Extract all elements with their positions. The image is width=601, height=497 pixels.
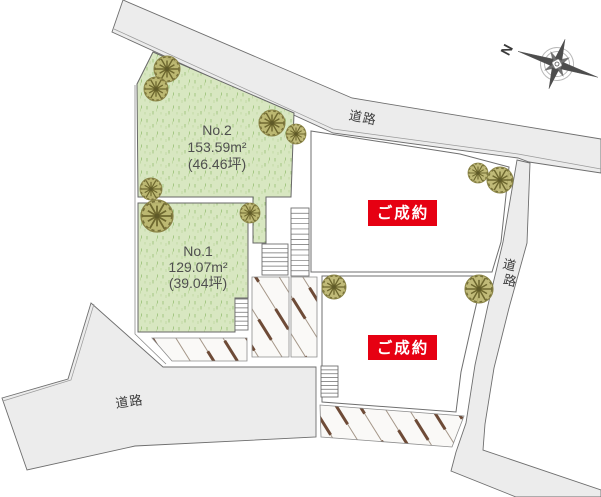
slope-hatch-mid-a — [252, 277, 289, 357]
sold-badge-label: ご成約 — [377, 338, 430, 357]
plot-no2-area-m2: 153.59m² — [187, 139, 246, 155]
tree-icon — [259, 110, 285, 136]
sold-badge-label: ご成約 — [377, 203, 430, 222]
tree-icon — [322, 275, 346, 299]
north-label: N — [497, 41, 516, 57]
plot-no2-name: No.2 — [202, 122, 232, 138]
tree-icon — [141, 200, 173, 232]
tree-icon — [468, 163, 488, 183]
tree-icon — [240, 203, 260, 223]
tree-icon — [144, 77, 168, 101]
tree-icon — [286, 124, 306, 144]
slope-hatch-left — [152, 338, 247, 361]
stairs-icon — [291, 208, 309, 276]
plot-no1-name: No.1 — [183, 243, 213, 259]
stairs-icon — [321, 366, 338, 397]
tree-icon — [465, 275, 493, 303]
sold-badge-lower: ご成約 — [368, 335, 437, 360]
tree-icon — [487, 167, 513, 193]
compass-spike-north — [555, 38, 568, 60]
compass-spike-south — [546, 68, 559, 90]
slope-hatch-mid-b — [291, 277, 317, 357]
compass-center — [554, 61, 559, 66]
plot-no1-area-tsubo: (39.04坪) — [169, 275, 227, 291]
compass-rose — [510, 27, 601, 102]
plot-no1-area-m2: 129.07m² — [168, 259, 227, 275]
site-plan-map: ご成約 ご成約 No.2 153.59m² (46.46坪) No.1 129.… — [0, 0, 601, 497]
stairs-icon — [235, 299, 248, 330]
tree-icon — [140, 178, 162, 200]
sold-badge-upper: ご成約 — [368, 200, 437, 226]
plot-no2-area-tsubo: (46.46坪) — [188, 156, 246, 172]
stairs-icon — [262, 244, 288, 275]
site-plan-svg: ご成約 ご成約 No.2 153.59m² (46.46坪) No.1 129.… — [0, 0, 601, 497]
